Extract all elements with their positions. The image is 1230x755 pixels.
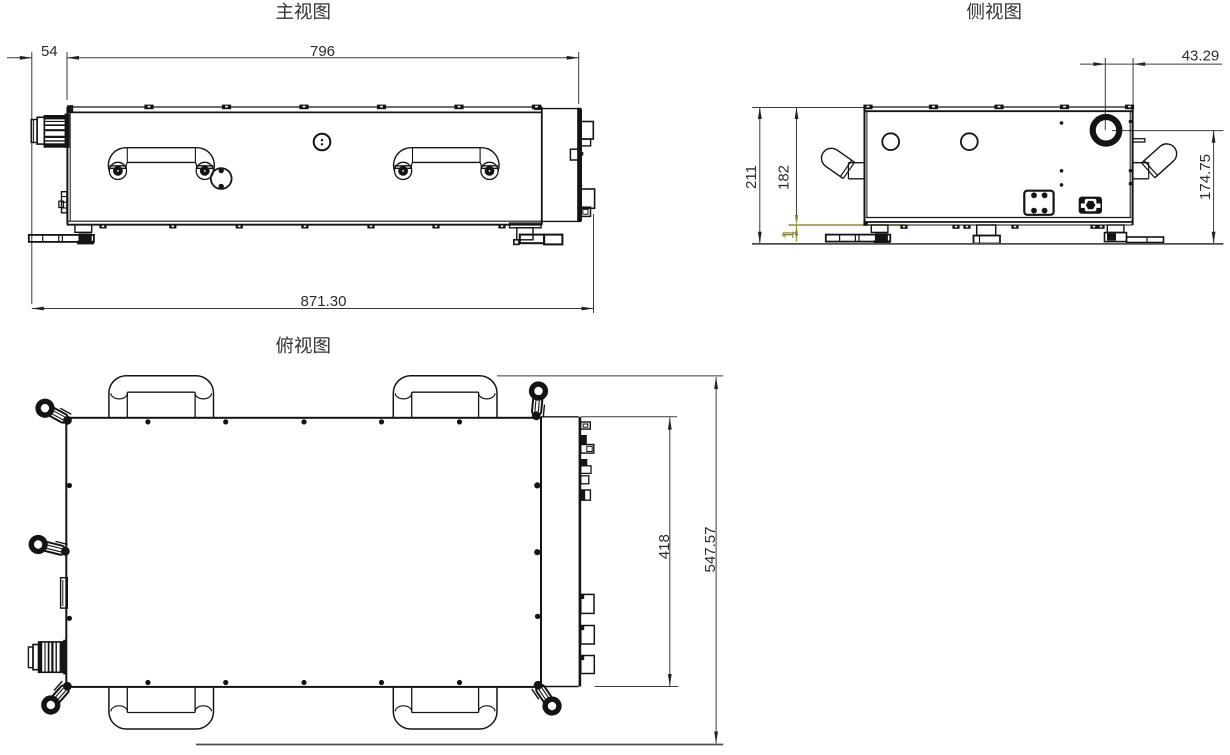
svg-text:871.30: 871.30 [301, 293, 347, 310]
svg-text:418: 418 [656, 534, 673, 559]
svg-text:211: 211 [743, 165, 760, 189]
svg-text:182: 182 [776, 165, 793, 190]
svg-text:54: 54 [41, 43, 58, 60]
svg-text:547.57: 547.57 [702, 527, 719, 573]
svg-text:43.29: 43.29 [1182, 48, 1220, 65]
svg-text:796: 796 [310, 43, 335, 60]
svg-text:1: 1 [781, 231, 798, 239]
svg-text:174.75: 174.75 [1197, 154, 1214, 200]
